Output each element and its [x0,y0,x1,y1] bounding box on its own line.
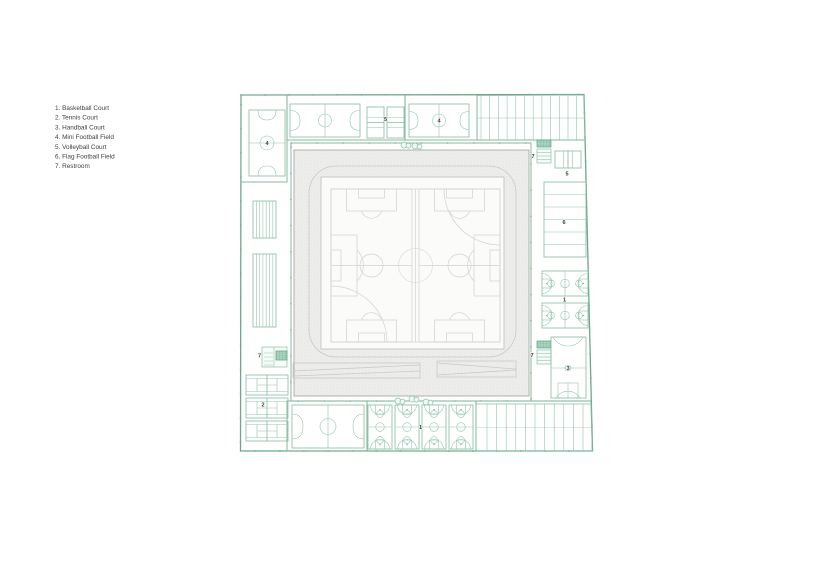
bush-icon [395,398,405,404]
legend-item-basketball: 1. Basketball Court [55,105,109,112]
bush-icon [423,399,433,405]
legend-item-restroom: 7. Restroom [55,163,90,170]
legend: 1. Basketball Court 2. Tennis Court 3. H… [55,105,115,170]
court-label-1-bottom: 1 [419,425,422,431]
court-label-3-right: 3 [566,366,569,372]
court-label-4-top: 4 [437,119,441,125]
parking-lot-top-right [477,95,585,140]
basketball-court-bottom-4 [449,405,473,449]
legend-item-mini-football: 4. Mini Football Field [55,134,114,141]
bush-icon [409,396,419,402]
basketball-court-bottom-3 [422,405,446,449]
court-label-7-left: 7 [258,354,261,360]
bush-icon [412,143,422,149]
restroom-left [262,347,287,367]
basketball-court-bottom-2 [395,405,419,449]
central-stadium [293,150,529,396]
volleyball-court-top-2 [387,107,404,138]
legend-item-handball: 3. Handball Court [55,124,105,131]
bleacher-strip-upper [253,201,276,238]
restroom-mid-right [537,341,551,364]
parking-lot-bottom-right [476,404,592,451]
basketball-court-right-2 [542,303,588,328]
tennis-court-2 [246,398,288,418]
site-plan-page: 4 5 4 7 5 6 1 7 3 7 2 1 1. Basketball Co… [0,0,818,578]
basketball-court-bottom-1 [368,405,392,449]
volleyball-court-top-1 [367,107,384,138]
court-label-5-right: 5 [565,172,568,178]
court-label-6-right: 6 [562,220,565,226]
legend-item-tennis: 2. Tennis Court [55,115,98,122]
tennis-court-1 [246,375,288,395]
volleyball-court-right [555,151,581,168]
tennis-court-3 [246,421,288,441]
mini-football-field-top-center [290,104,360,137]
stadium-infield [321,177,504,349]
court-label-7-top-right: 7 [531,154,534,160]
court-label-1-right: 1 [563,298,566,304]
restroom-top-right [537,140,551,163]
bleacher-strip-lower [253,254,276,327]
legend-item-volleyball: 5. Volleyball Court [55,144,107,151]
court-label-5-top: 5 [384,117,387,123]
court-label-4-left: 4 [265,141,269,147]
legend-item-flag-football: 6. Flag Football Field [55,154,115,161]
basketball-court-right-1 [542,271,588,296]
court-label-7-mid-right: 7 [530,353,533,359]
site-plan-drawing: 4 5 4 7 5 6 1 7 3 7 2 1 1. Basketball Co… [0,0,818,578]
court-label-2-left: 2 [261,403,264,409]
mini-football-field-bottom [292,405,364,448]
